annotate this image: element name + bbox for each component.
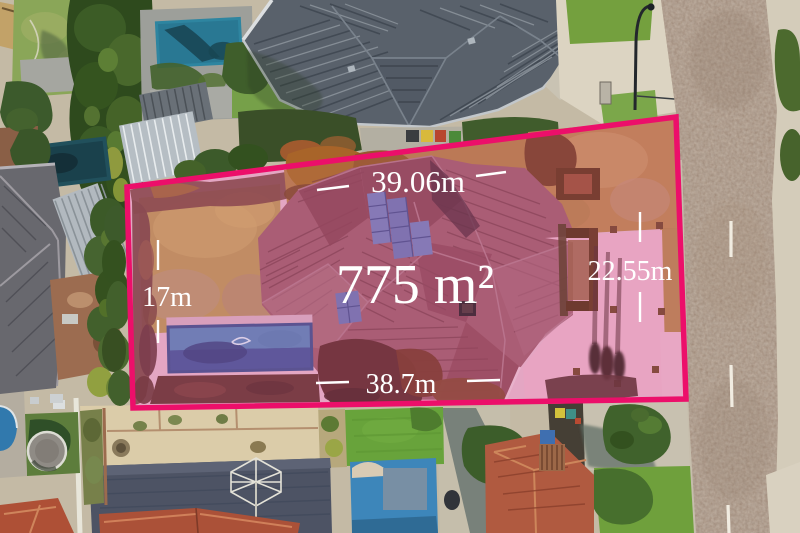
svg-text:38.7m: 38.7m bbox=[366, 369, 437, 400]
svg-text:22.55m: 22.55m bbox=[588, 256, 673, 287]
svg-text:39.06m: 39.06m bbox=[371, 164, 465, 199]
svg-text:775 m²: 775 m² bbox=[336, 254, 494, 316]
svg-text:17m: 17m bbox=[142, 282, 192, 313]
